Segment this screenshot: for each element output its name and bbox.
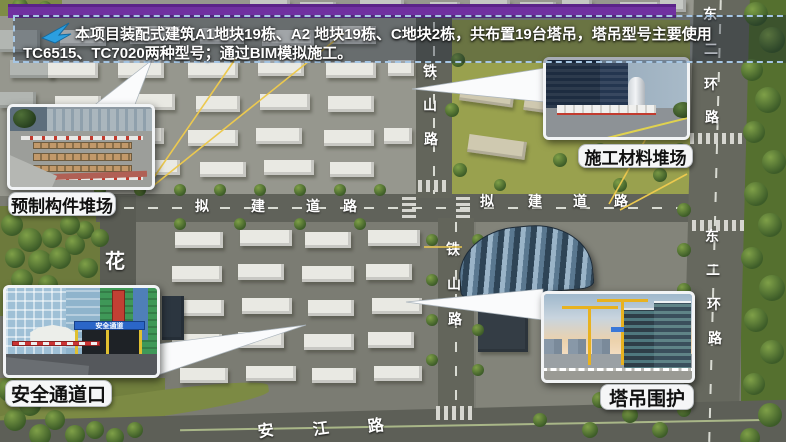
- callout-label-text: 施工材料堆场: [585, 144, 687, 169]
- tree-icon: [673, 102, 690, 117]
- inset-photo-safety-passage: 安全通道: [3, 285, 160, 378]
- crane-cab: [611, 327, 624, 332]
- callout-label-prefab-yard: 预制构件堆场: [8, 192, 116, 216]
- leader-line: [620, 174, 687, 210]
- banner-line-1: 本项目装配式建筑A1地块19栋、A2 地块19栋、C地块2栋，共布置19台塔吊，…: [75, 23, 712, 44]
- barrier-icon: [12, 341, 100, 346]
- banner-line-2: TC6515、TC7020两种型号；通过BIM模拟施工。: [23, 42, 352, 63]
- callout-label-crane-enclosure: 塔吊围护: [600, 384, 694, 410]
- inset-photo-material-yard: [543, 57, 690, 140]
- leader-line: [150, 58, 236, 183]
- callout-pointer-crane-enclosure: [406, 289, 543, 320]
- callout-label-text: 塔吊围护: [609, 384, 685, 411]
- callout-label-text: 安全通道口: [11, 380, 106, 407]
- silo-icon: [628, 77, 645, 108]
- tree-icon: [13, 109, 36, 128]
- crane-icon: [621, 299, 624, 364]
- crane-icon: [588, 306, 591, 364]
- canopy-sign: 安全通道: [74, 321, 145, 330]
- inset-photo-crane-enclosure: [541, 291, 695, 383]
- callout-pointer-safety-passage: [158, 325, 306, 375]
- summary-banner: 本项目装配式建筑A1地块19栋、A2 地块19栋、C地块2栋，共布置19台塔吊，…: [13, 15, 786, 63]
- callout-label-safety-passage: 安全通道口: [5, 380, 112, 407]
- callout-pointer-material-yard: [412, 68, 545, 102]
- callout-label-text: 预制构件堆场: [11, 192, 113, 217]
- callout-label-material-yard: 施工材料堆场: [578, 144, 693, 168]
- callout-pointer-prefab-yard: [92, 60, 152, 107]
- slide-canvas: 铁 山 路 铁 山 路 拟 建 道 路 拟 建 道 路 东 二 环 路 东 二 …: [0, 0, 786, 442]
- inset-photo-prefab-yard: [7, 104, 155, 190]
